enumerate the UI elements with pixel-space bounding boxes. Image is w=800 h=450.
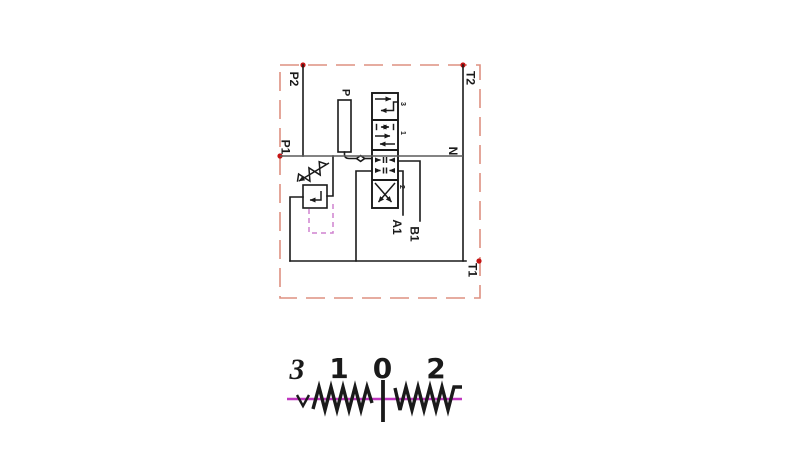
relief-flow-arrow-icon — [310, 191, 321, 200]
b1-line — [398, 161, 420, 221]
relief-valve-box — [303, 185, 327, 208]
relief-supply-line — [327, 156, 333, 196]
pressure-port-symbol — [338, 100, 372, 161]
port-label-b1: B1 — [408, 226, 422, 242]
position-digit-2: 2 — [426, 352, 445, 385]
detent-notch-icon — [297, 395, 309, 406]
port-label-p: P — [340, 89, 352, 96]
valve-position-label-1: 1 — [399, 131, 406, 135]
valve-position-label-2: 2 — [398, 185, 405, 189]
port-label-p1: P1 — [279, 140, 293, 155]
port-label-a1: A1 — [390, 219, 404, 235]
port-label-t1: T1 — [466, 263, 480, 277]
lever-position-diagram: 3 1 0 2 — [287, 352, 462, 422]
directional-valve-symbol: 3 1 2 — [372, 93, 406, 208]
p-rect — [338, 100, 351, 152]
port-label-t2: T2 — [464, 71, 478, 85]
port-label-p2: P2 — [287, 72, 301, 87]
position-digit-1: 1 — [329, 352, 348, 385]
relief-valve-symbol — [294, 159, 333, 233]
valve-return-line — [356, 171, 372, 261]
relief-tank-drop-line — [290, 197, 303, 261]
valve-position-label-3: 3 — [399, 102, 406, 106]
pilot-drain-line — [309, 200, 333, 233]
hydraulic-schematic: 3 1 2 P2 T2 P1 N T1 P A1 B1 3 1 0 2 — [0, 0, 800, 450]
port-label-n: N — [446, 147, 460, 156]
position-digit-3: 3 — [289, 353, 305, 386]
spring-adjust-arrow-icon — [299, 163, 329, 181]
canvas: 3 1 2 P2 T2 P1 N T1 P A1 B1 3 1 0 2 — [0, 0, 800, 450]
